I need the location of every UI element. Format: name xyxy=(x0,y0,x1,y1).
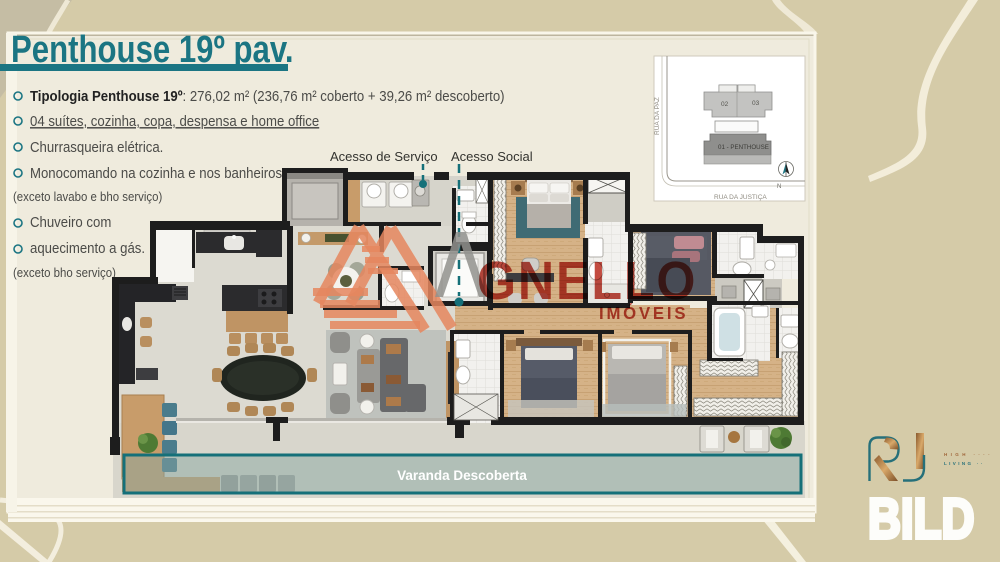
svg-text:LIVING ··: LIVING ·· xyxy=(944,461,985,466)
svg-text:HIGH ····: HIGH ···· xyxy=(944,452,993,457)
svg-text:02: 02 xyxy=(721,101,729,108)
svg-text:Monocomando na cozinha e nos b: Monocomando na cozinha e nos banheiros; xyxy=(30,164,286,181)
svg-text:Churrasqueira elétrica.: Churrasqueira elétrica. xyxy=(30,138,163,155)
svg-text:aquecimento a gás.: aquecimento a gás. xyxy=(30,239,145,256)
svg-text:Varanda Descoberta: Varanda Descoberta xyxy=(397,468,527,483)
svg-text:BILD: BILD xyxy=(868,486,974,550)
svg-text:Acesso de Serviço: Acesso de Serviço xyxy=(330,149,438,164)
svg-text:03: 03 xyxy=(752,100,760,107)
svg-text:Acesso Social: Acesso Social xyxy=(451,149,533,164)
svg-text:(exceto bho serviço): (exceto bho serviço) xyxy=(13,265,116,280)
svg-text:RUA DA PAZ: RUA DA PAZ xyxy=(654,97,661,135)
svg-text:RUA DA JUSTIÇA: RUA DA JUSTIÇA xyxy=(714,194,767,201)
svg-text:Tipologia Penthouse 19º: 276,0: Tipologia Penthouse 19º: 276,02 m² (236,… xyxy=(30,87,505,104)
svg-text:(exceto lavabo e bho serviço): (exceto lavabo e bho serviço) xyxy=(13,189,162,204)
svg-text:IMÓVEIS: IMÓVEIS xyxy=(599,302,688,323)
svg-text:04 suítes, cozinha, copa, desp: 04 suítes, cozinha, copa, despensa e hom… xyxy=(30,112,319,129)
svg-text:N: N xyxy=(777,184,781,190)
svg-text:01 - PENTHOUSE: 01 - PENTHOUSE xyxy=(718,144,769,151)
svg-text:Chuveiro com: Chuveiro com xyxy=(30,213,111,230)
